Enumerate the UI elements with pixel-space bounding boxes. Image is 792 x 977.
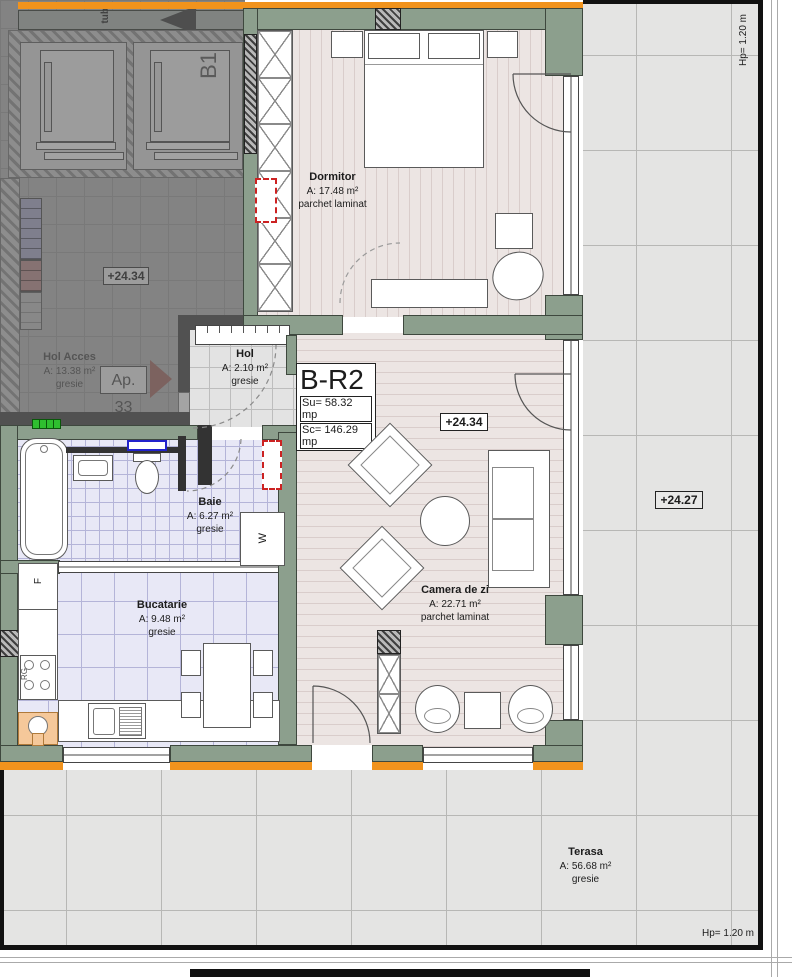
armchair-1-seat <box>360 435 419 494</box>
facade-accent-b4 <box>533 762 583 770</box>
window-living-right2 <box>563 645 579 720</box>
radiator-bathroom <box>262 440 282 490</box>
boiler-unit <box>18 712 58 745</box>
green-utility-markers <box>32 419 61 429</box>
sofa <box>488 450 550 588</box>
fridge-label: F <box>33 578 44 584</box>
pillow-right <box>428 33 480 59</box>
terrace-border-bottom <box>0 945 763 950</box>
terrace-border-left <box>0 770 4 945</box>
dresser <box>371 279 488 308</box>
bath-door-gap <box>212 427 262 440</box>
living-level-marker: +24.34 <box>440 413 488 431</box>
wall-bedroom-top <box>243 8 583 30</box>
terrace-level-marker: +24.27 <box>655 491 703 509</box>
washer-label: W <box>257 533 269 543</box>
window-bedroom-right <box>563 76 579 295</box>
wall-left-exterior <box>0 425 18 770</box>
facade-accent-b3 <box>372 762 423 770</box>
wall-bottom-l1 <box>372 745 423 762</box>
column-hatch-living <box>377 630 401 654</box>
hallway-closet-strip <box>195 325 290 345</box>
unit-sc: Sc= 146.29 mp <box>300 423 372 449</box>
lounge-chair-2-back <box>517 708 544 724</box>
kitchen-sink-drainer <box>119 707 142 736</box>
desk <box>495 213 533 249</box>
pillow-left <box>368 33 420 59</box>
shelf-column-living <box>377 654 401 734</box>
room-label-camera-de-zi: Camera de zi A: 22.71 m² parchet laminat <box>390 583 520 625</box>
terrace-floor-bottom <box>4 770 758 945</box>
sofa-cushion-bottom <box>492 519 534 571</box>
unit-title: B-R2 <box>300 365 372 395</box>
wall-bath-top-left <box>0 425 198 440</box>
bedroom-door-gap <box>343 317 403 333</box>
bathtub-inner <box>25 443 63 555</box>
parapet-height-label-bottom: Hp= 1.20 m <box>688 928 754 939</box>
room-label-terasa: Terasa A: 56.68 m² gresie <box>538 845 633 887</box>
window-kitchen-bottom <box>63 747 170 763</box>
burner-2 <box>40 660 50 670</box>
shaft-hatch-kitchen <box>0 630 20 657</box>
chimney-hatch-top <box>375 8 401 30</box>
bath-sink-basin <box>78 460 108 476</box>
nightstand-left <box>331 31 363 58</box>
bed-cover-line <box>365 64 483 65</box>
terrace-border-right <box>758 0 763 950</box>
wall-bottom-k1 <box>0 745 63 762</box>
dining-chair-3 <box>253 650 273 676</box>
wall-bath-entry-pier <box>198 425 212 485</box>
frame-line-v2 <box>777 0 778 977</box>
room-label-dormitor: Dormitor A: 17.48 m² parchet laminat <box>270 170 395 212</box>
glass-block-window <box>127 440 167 451</box>
wall-bottom-k2 <box>170 745 312 762</box>
wall-bottom-l2 <box>533 745 583 762</box>
frame-line-h2 <box>0 962 792 963</box>
boiler-stub <box>32 733 44 746</box>
burner-4 <box>40 680 50 690</box>
floor-plan-canvas: Hp= 1.20 m Hp= 1.20 m +24.27 Terasa A: 5… <box>0 0 792 977</box>
unit-su: Su= 58.32 mp <box>300 396 372 422</box>
toilet-bowl <box>135 460 159 494</box>
range-cooker: RG <box>20 655 56 700</box>
lounge-chair-2 <box>508 685 553 733</box>
wall-pier-r2 <box>545 595 583 645</box>
shaft-hatch-left <box>244 34 257 154</box>
dining-chair-2 <box>181 692 201 718</box>
fridge-divider <box>19 609 57 610</box>
window-living-bottom <box>423 747 533 763</box>
side-table-square <box>464 692 501 729</box>
facade-accent-b2 <box>170 762 312 770</box>
frame-line-v1 <box>771 0 772 977</box>
sofa-cushion-top <box>492 467 534 519</box>
unit-title-box: B-R2 Su= 58.32 mp Sc= 146.29 mp <box>296 363 376 451</box>
wall-bath-niche-v <box>178 436 186 491</box>
facade-accent-b1 <box>0 762 63 770</box>
dining-chair-1 <box>181 650 201 676</box>
room-label-baie: Baie A: 6.27 m² gresie <box>165 495 255 537</box>
coffee-table-round <box>420 496 470 546</box>
window-living-right1 <box>563 340 579 595</box>
bath-sink <box>73 455 113 481</box>
range-label: RG <box>20 668 29 680</box>
parapet-height-label-right: Hp= 1.20 m <box>738 14 749 66</box>
nightstand-right <box>487 31 518 58</box>
title-block-bar <box>190 969 590 977</box>
wall-corner-tr <box>545 8 583 76</box>
dining-chair-4 <box>253 692 273 718</box>
wall-bedroom-bottom-right <box>403 315 583 335</box>
room-label-bucatarie: Bucatarie A: 9.48 m² gresie <box>108 598 216 640</box>
room-label-hol: Hol A: 2.10 m² gresie <box>205 347 285 389</box>
burner-3 <box>24 680 34 690</box>
kitchen-sink-bowl <box>93 708 115 735</box>
dining-table <box>203 643 251 728</box>
lounge-chair-1-back <box>424 708 451 724</box>
bathtub <box>20 438 68 560</box>
terrace-border-top <box>583 0 763 4</box>
terrace-door-gap <box>312 745 372 762</box>
kitchen-sink-unit <box>88 703 146 739</box>
lounge-chair-1 <box>415 685 460 733</box>
bathtub-drain-icon <box>40 445 48 453</box>
frame-line-h1 <box>0 957 792 958</box>
